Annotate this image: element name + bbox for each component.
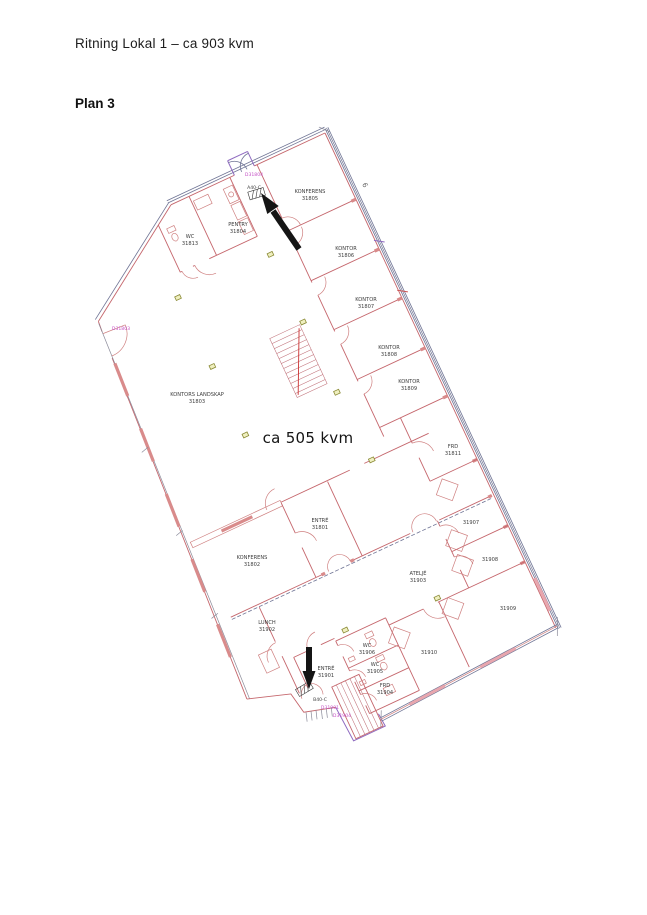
room-id-31905: 31905 (367, 669, 383, 675)
electrical-symbols (175, 249, 441, 647)
room-id-31903: 31903 (410, 578, 426, 584)
room-name-31802: KONFERENS (237, 555, 268, 561)
room-id-31906: 31906 (359, 650, 375, 656)
room-id-31908: 31908 (482, 557, 498, 563)
room-name-31902: LUNCH (258, 620, 276, 626)
room-id-31801: 31801 (312, 525, 328, 531)
room-name-31901: ENTRÉ (318, 664, 335, 672)
grid-label: 6 (360, 181, 369, 189)
room-name-31811: FRD (448, 444, 458, 450)
room-name-31808: KONTOR (378, 345, 400, 351)
arrow-top (261, 193, 299, 249)
room-name-31904: FRD (380, 683, 390, 689)
room-id-31909: 31909 (500, 606, 516, 612)
room-id-31804: 31804 (230, 229, 246, 235)
floorplan-svg: KONFERENS31805KONTOR31806KONTOR31807KONT… (0, 0, 647, 915)
door-label: D31804 (245, 172, 263, 178)
door-label: D31901 (321, 705, 339, 711)
room-id-31809: 31809 (401, 386, 417, 392)
room-id-31901: 31901 (318, 673, 334, 679)
room-name-31801: ENTRÉ (312, 516, 329, 524)
door-label: D31904 (333, 713, 351, 719)
door-label: A40-C (247, 185, 261, 191)
room-name-31809: KONTOR (398, 379, 420, 385)
room-name-31804: PENTRY (228, 222, 248, 228)
room-id-31807: 31807 (358, 304, 374, 310)
area-label: ca 505 kvm (263, 429, 354, 447)
door-label: D31803 (112, 326, 130, 332)
room-name-31813: WC (186, 234, 195, 240)
room-id-31907: 31907 (463, 520, 479, 526)
room-id-31802: 31802 (244, 562, 260, 568)
room-name-31803: KONTORS LANDSKAP (170, 392, 224, 398)
room-name-31906: WC (363, 643, 372, 649)
room-id-31813: 31813 (182, 241, 198, 247)
room-id-31910: 31910 (421, 650, 437, 656)
room-name-31905: WC (371, 662, 380, 668)
room-id-31811: 31811 (445, 451, 461, 457)
room-id-31904: 31904 (377, 690, 393, 696)
door-arcs (89, 202, 519, 741)
room-name-31903: ATELJÉ (410, 569, 427, 577)
stair-upper (270, 325, 327, 398)
room-id-31805: 31805 (302, 196, 318, 202)
room-name-31806: KONTOR (335, 246, 357, 252)
room-id-31806: 31806 (338, 253, 354, 259)
arrow-bottom (303, 647, 316, 689)
room-name-31805: KONFERENS (295, 189, 326, 195)
room-name-31807: KONTOR (355, 297, 377, 303)
document-page: Ritning Lokal 1 – ca 903 kvm Plan 3 (0, 0, 647, 915)
room-id-31803: 31803 (189, 399, 205, 405)
room-id-31808: 31808 (381, 352, 397, 358)
room-id-31902: 31902 (259, 627, 275, 633)
door-label: B40-C (313, 697, 327, 703)
